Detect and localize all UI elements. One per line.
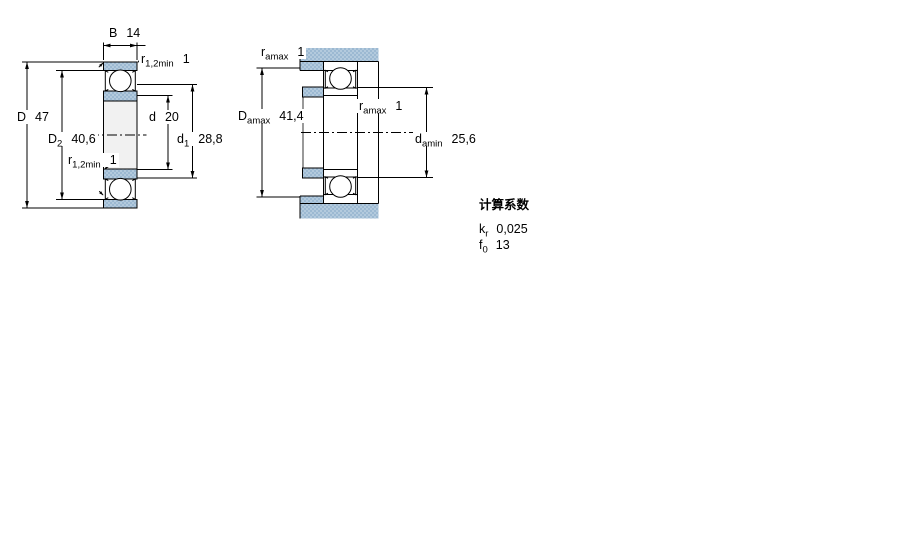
inner-ring-bottom: [104, 169, 138, 179]
ball-top: [110, 70, 132, 92]
shaft-shoulder-top: [303, 87, 324, 97]
inner-ring-top: [104, 91, 138, 101]
shield-bottom-right-icon: [132, 179, 135, 199]
dim-label-D2: D240,6: [46, 132, 98, 146]
dim-label-d1: d128,8: [175, 132, 225, 146]
dim-label-d: d20: [147, 110, 181, 124]
ball-top: [330, 68, 352, 90]
right-bearing-mounting-view: [257, 48, 434, 219]
calculation-factors-title: 计算系数: [479, 194, 529, 213]
dim-label-ramax-mid: ramax1: [357, 99, 404, 113]
outer-ring-top: [104, 62, 138, 71]
dim-label-r12min-top: r1,2min1: [139, 52, 192, 66]
shield-top-right-icon: [132, 71, 135, 91]
factor-kr: kr0,025: [479, 222, 529, 236]
dim-label-B: B14: [107, 26, 142, 40]
factor-f0: f013: [479, 238, 529, 252]
dim-label-r12min-bottom: r1,2min1: [66, 153, 119, 167]
dim-label-damin: damin25,6: [413, 132, 478, 146]
dim-label-ramax-top: ramax1: [259, 45, 306, 59]
bearing-drawing-svg: [0, 0, 900, 560]
dimension-d: [137, 96, 173, 170]
shaft-shoulder-bottom: [303, 168, 324, 178]
shield-bottom-left-icon: [105, 179, 108, 199]
dimension-Damax: [257, 68, 301, 197]
ball-bottom: [110, 178, 132, 200]
dim-label-Damax: Damax41,4: [236, 109, 306, 123]
outer-ring-bottom: [104, 200, 138, 209]
shield-top-left-icon: [105, 71, 108, 91]
technical-drawing-page: B14 r1,2min1 D47 D240,6 r1,2min1 d20 d12…: [0, 0, 900, 560]
dim-label-D: D47: [15, 110, 51, 124]
calculation-factors-block: 计算系数 kr0,025 f013: [479, 194, 529, 254]
ball-bottom: [330, 176, 352, 198]
